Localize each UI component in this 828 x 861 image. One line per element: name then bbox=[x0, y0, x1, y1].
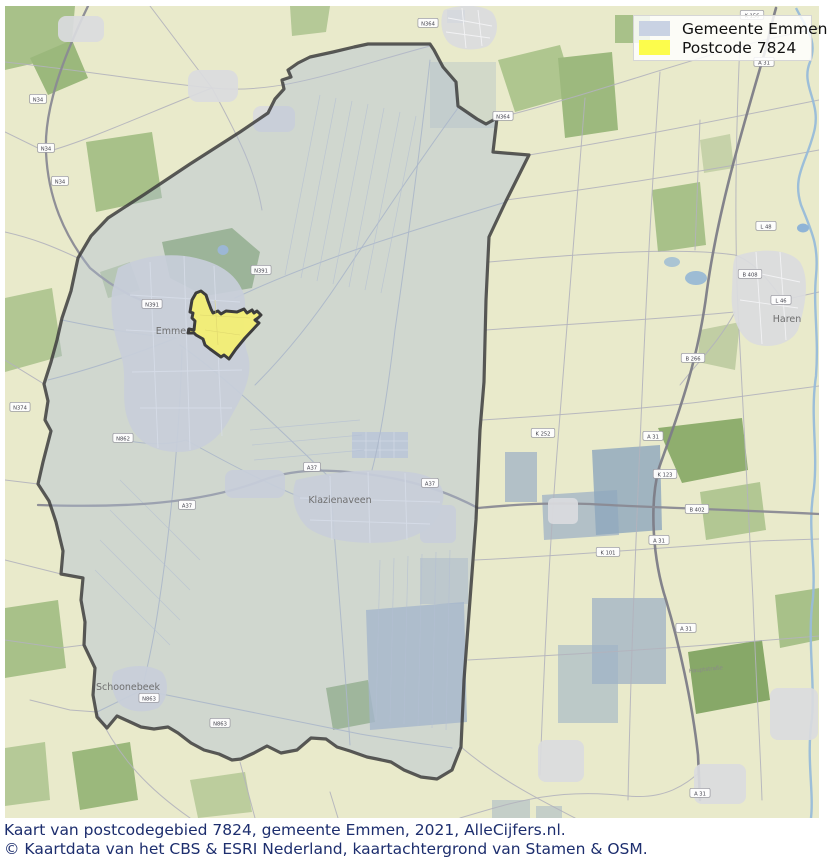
svg-text:A 31: A 31 bbox=[647, 434, 659, 440]
svg-text:N34: N34 bbox=[41, 146, 52, 152]
road-badge: A37 bbox=[179, 500, 196, 509]
road-badge: A37 bbox=[422, 478, 439, 487]
svg-text:B 266: B 266 bbox=[685, 356, 700, 362]
town-label: Klazienaveen bbox=[308, 495, 371, 506]
legend-item-gemeente: Gemeente Emmen bbox=[639, 19, 805, 38]
svg-text:K 123: K 123 bbox=[658, 472, 673, 478]
road-badge: N34 bbox=[30, 94, 47, 103]
town-label: Emmen bbox=[156, 326, 192, 337]
svg-text:A 31: A 31 bbox=[758, 60, 770, 66]
svg-text:L 46: L 46 bbox=[775, 298, 786, 304]
road-badge: A 31 bbox=[676, 623, 696, 632]
svg-text:N863: N863 bbox=[142, 696, 156, 702]
road-badge: N34 bbox=[38, 143, 55, 152]
svg-text:N862: N862 bbox=[116, 436, 130, 442]
town-label: Schoonebeek bbox=[96, 682, 160, 693]
road-badge: N863 bbox=[139, 693, 159, 702]
road-badge: N862 bbox=[113, 433, 133, 442]
svg-text:A37: A37 bbox=[307, 465, 317, 471]
road-badge: K 252 bbox=[531, 428, 555, 437]
svg-text:A 31: A 31 bbox=[680, 626, 692, 632]
page: { "legend": { "items": [ {"label": "Geme… bbox=[0, 0, 828, 861]
road-badge: N391 bbox=[142, 299, 162, 308]
svg-text:N374: N374 bbox=[13, 405, 27, 411]
svg-text:B 408: B 408 bbox=[742, 272, 757, 278]
svg-text:N34: N34 bbox=[33, 97, 44, 103]
road-badge: N391 bbox=[251, 265, 271, 274]
postcode-swatch-icon bbox=[639, 40, 670, 55]
road-badge: N374 bbox=[10, 402, 30, 411]
town-label: Haren bbox=[773, 314, 802, 325]
road-badge: N34 bbox=[52, 176, 69, 185]
svg-text:A37: A37 bbox=[182, 503, 192, 509]
svg-text:B 402: B 402 bbox=[689, 507, 704, 513]
road-badge: L 46 bbox=[771, 295, 791, 304]
road-badge: N863 bbox=[210, 718, 230, 727]
road-badge: B 402 bbox=[685, 504, 709, 513]
road-badge: K 101 bbox=[596, 547, 620, 556]
svg-text:N391: N391 bbox=[145, 302, 159, 308]
gemeente-swatch-icon bbox=[639, 21, 670, 36]
road-badge: B 266 bbox=[681, 353, 705, 362]
basemap-svg: EmmenKlazienaveenSchoonebeekHaren N34N34… bbox=[5, 6, 819, 818]
legend-gemeente-label: Gemeente Emmen bbox=[682, 20, 827, 38]
road-badge: K 123 bbox=[653, 469, 677, 478]
svg-text:N34: N34 bbox=[55, 179, 66, 185]
road-badge: L 48 bbox=[756, 221, 776, 230]
caption-line-1: Kaart van postcodegebied 7824, gemeente … bbox=[4, 821, 824, 840]
svg-text:N391: N391 bbox=[254, 268, 268, 274]
road-badge: A 31 bbox=[649, 535, 669, 544]
road-badge: B 408 bbox=[738, 269, 762, 278]
svg-text:N364: N364 bbox=[421, 21, 435, 27]
map-caption: Kaart van postcodegebied 7824, gemeente … bbox=[4, 821, 824, 859]
map-canvas: EmmenKlazienaveenSchoonebeekHaren N34N34… bbox=[5, 6, 819, 818]
svg-text:A37: A37 bbox=[425, 481, 435, 487]
road-badge: A 31 bbox=[643, 431, 663, 440]
road-badge: N364 bbox=[493, 111, 513, 120]
svg-text:L 48: L 48 bbox=[760, 224, 771, 230]
svg-text:N863: N863 bbox=[213, 721, 227, 727]
svg-text:A 31: A 31 bbox=[653, 538, 665, 544]
map-legend: Gemeente Emmen Postcode 7824 bbox=[633, 15, 812, 61]
caption-line-2: © Kaartdata van het CBS & ESRI Nederland… bbox=[4, 840, 824, 859]
road-badge: N364 bbox=[418, 18, 438, 27]
svg-text:N364: N364 bbox=[496, 114, 510, 120]
road-badge: A 31 bbox=[690, 788, 710, 797]
legend-item-postcode: Postcode 7824 bbox=[639, 38, 805, 57]
legend-postcode-label: Postcode 7824 bbox=[682, 39, 796, 57]
svg-text:K 252: K 252 bbox=[536, 431, 551, 437]
svg-text:A 31: A 31 bbox=[694, 791, 706, 797]
svg-text:K 101: K 101 bbox=[601, 550, 616, 556]
road-badge: A37 bbox=[304, 462, 321, 471]
